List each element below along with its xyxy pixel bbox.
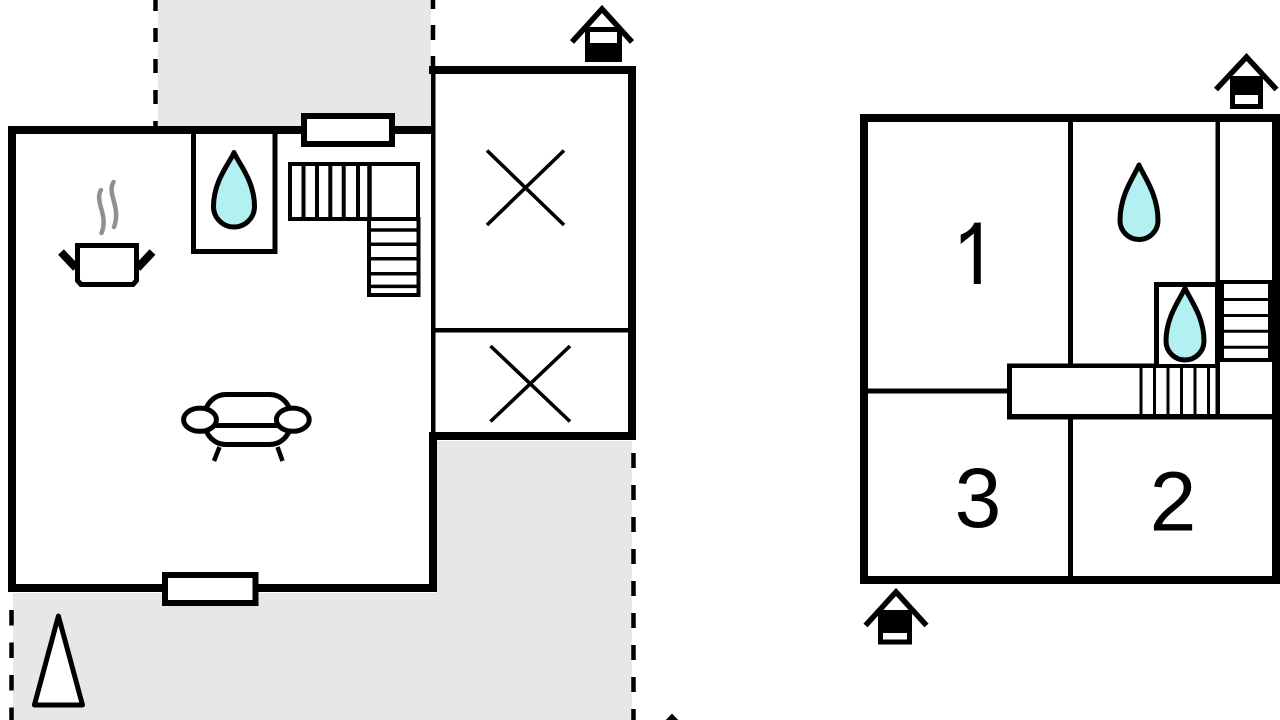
- svg-text:3: 3: [955, 451, 1002, 545]
- svg-text:2: 2: [1150, 455, 1197, 549]
